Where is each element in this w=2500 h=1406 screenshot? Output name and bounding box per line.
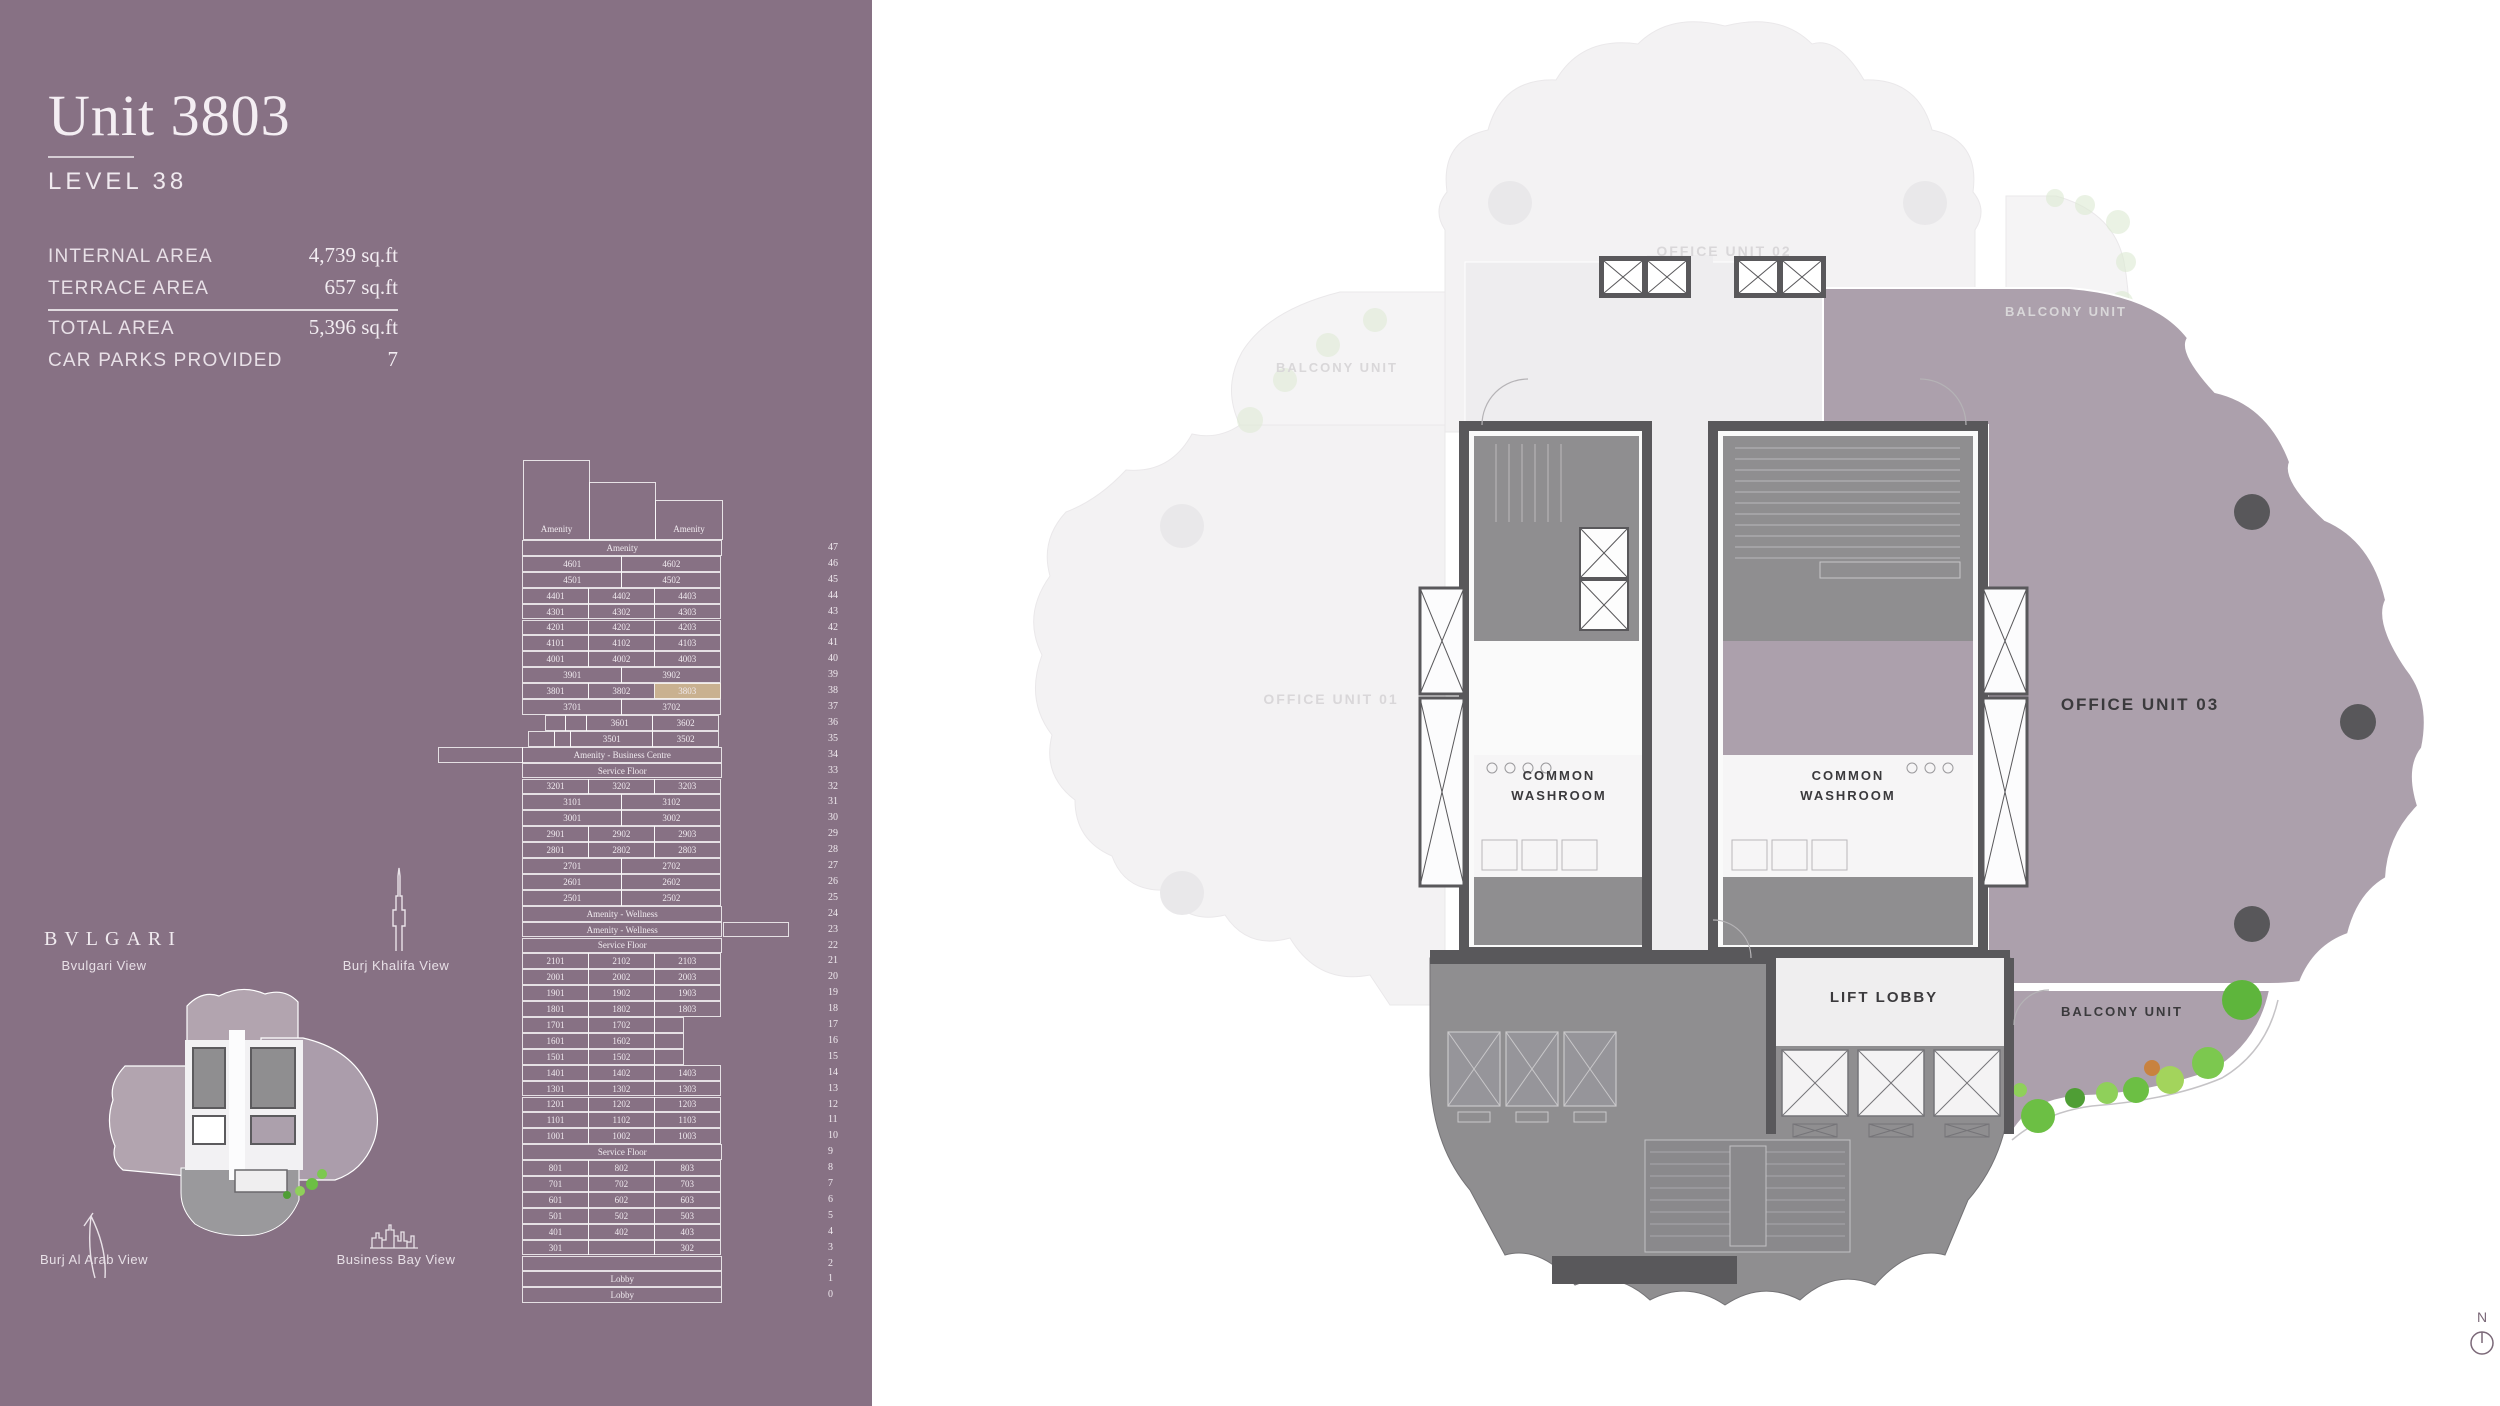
- stack-cell-4402: 4402: [588, 588, 655, 604]
- stack-cell-2003: 2003: [654, 969, 721, 985]
- stack-cell-4001: 4001: [522, 651, 589, 667]
- north-compass-icon: N: [2471, 1309, 2493, 1354]
- stack-level-number: 30: [828, 812, 838, 823]
- stack-level-41: 41014102410341: [523, 635, 721, 651]
- stack-level-23: Amenity - Wellness23: [523, 922, 722, 938]
- stack-level-31: 3101310231: [523, 794, 721, 810]
- stack-cell-1702: 1702: [588, 1017, 655, 1033]
- stack-level-number: 29: [828, 828, 838, 839]
- stack-cell-2803: 2803: [654, 842, 721, 858]
- stack-level-36: 3601360236: [523, 715, 719, 731]
- stack-level-37: 3701370237: [523, 699, 721, 715]
- tree: [2123, 1077, 2149, 1103]
- stack-topbox-right: Amenity: [655, 500, 723, 540]
- stack-level-number: 3: [828, 1242, 833, 1253]
- stack-cell-302: 302: [654, 1240, 721, 1256]
- stack-cell-3601: 3601: [586, 715, 653, 731]
- stack-cell-2701: 2701: [522, 858, 622, 874]
- stack-cell-1801: 1801: [522, 1001, 589, 1017]
- stack-cell-2102: 2102: [588, 953, 655, 969]
- building-stacking-plan: Amenity Amenity Amenity47460146024645014…: [523, 460, 723, 1305]
- stack-level-14: 14011402140314: [523, 1065, 721, 1081]
- stack-level-number: 14: [828, 1067, 838, 1078]
- service-stair: [1645, 1140, 1850, 1252]
- business-bay-view-label: Business Bay View: [326, 1252, 466, 1267]
- stack-cell-3203: 3203: [654, 779, 721, 795]
- main-floor-plan: OFFICE UNIT 02 BALCONY UNIT BALCONY UNIT…: [870, 0, 2500, 1406]
- stack-level-13: 13011302130313: [523, 1081, 721, 1097]
- stack-cell-1303: 1303: [654, 1081, 721, 1097]
- stack-level-30: 3001300230: [523, 810, 721, 826]
- stack-cell-empty: [588, 1240, 655, 1256]
- stack-cell-301: 301: [522, 1240, 589, 1256]
- tree: [2192, 1047, 2224, 1079]
- office-unit-03-label: OFFICE UNIT 03: [2061, 695, 2219, 714]
- stack-topbox-middle: [589, 482, 656, 540]
- title-underline: [48, 156, 134, 158]
- stack-cell-601: 601: [522, 1192, 589, 1208]
- stack-cell-503: 503: [654, 1208, 721, 1224]
- stack-level-1: Lobby1: [523, 1271, 722, 1287]
- bvlgari-view-label: Bvulgari View: [34, 958, 174, 973]
- washroom-2-label-bottom: WASHROOM: [1800, 788, 1895, 803]
- stack-cell-empty: [683, 1017, 720, 1033]
- stack-level-32: 32013202320332: [523, 779, 721, 795]
- stack-cell-1102: 1102: [588, 1112, 655, 1128]
- stack-cell-3602: 3602: [652, 715, 719, 731]
- stack-level-number: 7: [828, 1178, 833, 1189]
- stack-level-number: 46: [828, 558, 838, 569]
- stack-cell-3902: 3902: [621, 667, 721, 683]
- stack-level-number: 19: [828, 987, 838, 998]
- stack-cell-empty: [654, 1033, 684, 1049]
- stack-cell-2501: 2501: [522, 890, 622, 906]
- stack-cell-1901: 1901: [522, 985, 589, 1001]
- stack-cell-1202: 1202: [588, 1097, 655, 1113]
- stack-cell-3801: 3801: [522, 683, 589, 699]
- stack-cell-2902: 2902: [588, 826, 655, 842]
- stack-level-27: 2701270227: [523, 858, 721, 874]
- stack-cell-empty: [522, 1256, 722, 1272]
- stack-cell-4502: 4502: [621, 572, 721, 588]
- stack-level-33: Service Floor33: [523, 763, 722, 779]
- stack-level-10: 10011002100310: [523, 1128, 721, 1144]
- burj-khalifa-view-label: Burj Khalifa View: [326, 958, 466, 973]
- stack-level-number: 1: [828, 1273, 833, 1284]
- washroom-1-label-bottom: WASHROOM: [1511, 788, 1606, 803]
- stack-level-2: 2: [523, 1256, 722, 1272]
- lift-lobby-label: LIFT LOBBY: [1830, 989, 1938, 1006]
- stack-cell-501: 501: [522, 1208, 589, 1224]
- stack-cell-Amenity: Amenity: [522, 540, 722, 556]
- stat-car-parks: CAR PARKS PROVIDED 7: [48, 347, 398, 379]
- stack-cell-2001: 2001: [522, 969, 589, 985]
- stack-level-34: Amenity - Business Centre34: [523, 747, 722, 763]
- stack-level-26: 2601260226: [523, 874, 721, 890]
- stack-cell-4301: 4301: [522, 604, 589, 620]
- page-title: Unit 3803: [48, 82, 291, 149]
- stack-cell-1501: 1501: [522, 1049, 589, 1065]
- stack-level-18: 18011802180318: [523, 1001, 721, 1017]
- stat-internal-area: INTERNAL AREA 4,739 sq.ft: [48, 243, 398, 275]
- stack-cell-803: 803: [654, 1160, 721, 1176]
- stack-cell-401: 401: [522, 1224, 589, 1240]
- stack-cell-3102: 3102: [621, 794, 721, 810]
- stack-cell-empty: [654, 1017, 684, 1033]
- stack-cell-Amenity - Wellness: Amenity - Wellness: [522, 922, 722, 938]
- stack-cell-1103: 1103: [654, 1112, 721, 1128]
- stack-level-number: 33: [828, 765, 838, 776]
- stack-cell-1602: 1602: [588, 1033, 655, 1049]
- bvlgari-logo: BVLGARI: [44, 928, 164, 951]
- stack-cell-703: 703: [654, 1176, 721, 1192]
- stack-cell-1101: 1101: [522, 1112, 589, 1128]
- balcony-unit-label: BALCONY UNIT: [2061, 1004, 2183, 1019]
- stack-cell-702: 702: [588, 1176, 655, 1192]
- stack-cell-3202: 3202: [588, 779, 655, 795]
- stack-level-number: 20: [828, 971, 838, 982]
- stack-cell-3501: 3501: [570, 731, 653, 747]
- stack-cell-3702: 3702: [621, 699, 721, 715]
- stack-level-number: 32: [828, 781, 838, 792]
- unit03-inner-room: [1723, 641, 1973, 755]
- stack-cell-2702: 2702: [621, 858, 721, 874]
- compass-n-label: N: [2477, 1309, 2487, 1325]
- stack-level-number: 42: [828, 622, 838, 633]
- office-unit-02-label: OFFICE UNIT 02: [1656, 243, 1791, 259]
- stack-cell-4203: 4203: [654, 620, 721, 636]
- stack-level-25: 2501250225: [523, 890, 721, 906]
- stack-cell-603: 603: [654, 1192, 721, 1208]
- stack-cell-602: 602: [588, 1192, 655, 1208]
- stack-cell-1902: 1902: [588, 985, 655, 1001]
- stack-cell-4003: 4003: [654, 651, 721, 667]
- burj-khalifa-icon: [384, 866, 414, 952]
- stack-level-number: 37: [828, 701, 838, 712]
- lift-shafts: [1782, 1050, 2000, 1137]
- stack-level-17: 1701170217: [523, 1017, 720, 1033]
- stack-cell-4303: 4303: [654, 604, 721, 620]
- stack-level-6: 6016026036: [523, 1192, 721, 1208]
- stack-cell-1802: 1802: [588, 1001, 655, 1017]
- stack-level-number: 16: [828, 1035, 838, 1046]
- stack-level-number: 22: [828, 940, 838, 951]
- business-bay-icon: [370, 1222, 420, 1250]
- stack-level-number: 47: [828, 542, 838, 553]
- stack-level-number: 23: [828, 924, 838, 935]
- stack-level-number: 28: [828, 844, 838, 855]
- stack-level-number: 26: [828, 876, 838, 887]
- stack-cell-3502: 3502: [652, 731, 719, 747]
- stack-cell-empty: [545, 715, 566, 731]
- stack-cell-1403: 1403: [654, 1065, 721, 1081]
- stack-level-number: 24: [828, 908, 838, 919]
- stack-cell-2801: 2801: [522, 842, 589, 858]
- stack-level-number: 12: [828, 1099, 838, 1110]
- stack-level-22: Service Floor22: [523, 938, 722, 954]
- stack-level-9: Service Floor9: [523, 1144, 722, 1160]
- stack-cell-1002: 1002: [588, 1128, 655, 1144]
- stat-terrace-area: TERRACE AREA 657 sq.ft: [48, 275, 398, 307]
- stack-cell-empty: [528, 731, 555, 747]
- stack-level-number: 10: [828, 1130, 838, 1141]
- stack-level-number: 44: [828, 590, 838, 601]
- stack-level-number: 2: [828, 1258, 833, 1269]
- stack-cell-Amenity - Business Centre: Amenity - Business Centre: [522, 747, 722, 763]
- stack-level-12: 12011202120312: [523, 1097, 721, 1113]
- level-subtitle: LEVEL 38: [48, 168, 187, 196]
- stack-level-number: 15: [828, 1051, 838, 1062]
- stack-cell-Amenity - Wellness: Amenity - Wellness: [522, 906, 722, 922]
- stack-cell-1401: 1401: [522, 1065, 589, 1081]
- stack-level-number: 34: [828, 749, 838, 760]
- stack-cell-2901: 2901: [522, 826, 589, 842]
- stack-level-number: 38: [828, 685, 838, 696]
- stack-cell-502: 502: [588, 1208, 655, 1224]
- stack-cell-701: 701: [522, 1176, 589, 1192]
- stack-cell-3001: 3001: [522, 810, 622, 826]
- stack-cell-1001: 1001: [522, 1128, 589, 1144]
- stack-cell-2103: 2103: [654, 953, 721, 969]
- brochure-page: Unit 3803 LEVEL 38 INTERNAL AREA 4,739 s…: [0, 0, 2500, 1406]
- stack-level-40: 40014002400340: [523, 651, 721, 667]
- stack-cell-1302: 1302: [588, 1081, 655, 1097]
- stack-level-number: 4: [828, 1226, 833, 1237]
- central-corridor: [1647, 255, 1713, 958]
- stack-level-number: 18: [828, 1003, 838, 1014]
- stack-cell-3002: 3002: [621, 810, 721, 826]
- stack-cell-3201: 3201: [522, 779, 589, 795]
- stack-cell-3901: 3901: [522, 667, 622, 683]
- stack-cell-1402: 1402: [588, 1065, 655, 1081]
- stack-cell-4002: 4002: [588, 651, 655, 667]
- right-core: [1713, 426, 2027, 952]
- stack-level-16: 1601160216: [523, 1033, 720, 1049]
- stack-cell-4102: 4102: [588, 635, 655, 651]
- stack-cell-3701: 3701: [522, 699, 622, 715]
- stack-cell-Service Floor: Service Floor: [522, 1144, 722, 1160]
- stack-level-number: 45: [828, 574, 838, 585]
- stack-cell-Lobby: Lobby: [522, 1271, 722, 1287]
- burj-al-arab-icon: [75, 1210, 115, 1282]
- stack-level-number: 9: [828, 1146, 833, 1157]
- stack-cell-1201: 1201: [522, 1097, 589, 1113]
- stack-cell-1701: 1701: [522, 1017, 589, 1033]
- stack-cell-4201: 4201: [522, 620, 589, 636]
- left-core: [1420, 426, 1647, 952]
- stack-level-number: 8: [828, 1162, 833, 1173]
- stack-cell-4501: 4501: [522, 572, 622, 588]
- stack-level-number: 41: [828, 637, 838, 648]
- stack-cell-403: 403: [654, 1224, 721, 1240]
- stack-cell-1203: 1203: [654, 1097, 721, 1113]
- column: [2234, 906, 2270, 942]
- stack-cell-2502: 2502: [621, 890, 721, 906]
- stack-cell-1003: 1003: [654, 1128, 721, 1144]
- stack-cell-2903: 2903: [654, 826, 721, 842]
- area-stats: INTERNAL AREA 4,739 sq.ft TERRACE AREA 6…: [48, 243, 398, 379]
- stack-level-4: 4014024034: [523, 1224, 721, 1240]
- stack-cell-empty: [654, 1049, 684, 1065]
- balcony-unit-top-right-label: BALCONY UNIT: [2005, 304, 2127, 319]
- column: [2234, 494, 2270, 530]
- stack-cell-2602: 2602: [621, 874, 721, 890]
- stack-level-11: 11011102110311: [523, 1112, 721, 1128]
- stack-level-39: 3901390239: [523, 667, 721, 683]
- stack-level-19: 19011902190319: [523, 985, 721, 1001]
- stack-level-number: 17: [828, 1019, 838, 1030]
- stack-cell-2002: 2002: [588, 969, 655, 985]
- stack-level-24: Amenity - Wellness24: [523, 906, 722, 922]
- stack-level-number: 5: [828, 1210, 833, 1221]
- stack-cell-3802: 3802: [588, 683, 655, 699]
- left-info-panel: Unit 3803 LEVEL 38 INTERNAL AREA 4,739 s…: [0, 0, 872, 1406]
- stack-level-number: 6: [828, 1194, 833, 1205]
- stat-total-area: TOTAL AREA 5,396 sq.ft: [48, 315, 398, 347]
- stack-cell-3803: 3803: [654, 683, 721, 699]
- stack-level-21: 21012102210321: [523, 953, 721, 969]
- stack-cell-4602: 4602: [621, 556, 721, 572]
- stack-cell-4302: 4302: [588, 604, 655, 620]
- stack-level-number: 25: [828, 892, 838, 903]
- stack-level-number: 39: [828, 669, 838, 680]
- stack-level-38: 38013802380338: [523, 683, 721, 699]
- stack-cell-1301: 1301: [522, 1081, 589, 1097]
- washroom-1-label-top: COMMON: [1523, 768, 1596, 783]
- stack-level-43: 43014302430343: [523, 604, 721, 620]
- shrub: [2013, 1083, 2027, 1097]
- stack-level-number: 31: [828, 796, 838, 807]
- stack-cell-1803: 1803: [654, 1001, 721, 1017]
- stack-cell-2601: 2601: [522, 874, 622, 890]
- stack-level-number: 27: [828, 860, 838, 871]
- stack-cell-1502: 1502: [588, 1049, 655, 1065]
- stack-cell-empty: [565, 715, 587, 731]
- office-unit-01-area: [1034, 425, 1445, 1005]
- tree: [2222, 980, 2262, 1020]
- stack-cell-2802: 2802: [588, 842, 655, 858]
- stack-level-42: 42014202420342: [523, 620, 721, 636]
- stack-level-7: 7017027037: [523, 1176, 721, 1192]
- stack-cell-4403: 4403: [654, 588, 721, 604]
- stack-level-number: 11: [828, 1114, 838, 1125]
- mini-key-plan: [107, 988, 383, 1237]
- stack-cell-4601: 4601: [522, 556, 622, 572]
- stack-level-number: 21: [828, 955, 838, 966]
- stack-cell-Service Floor: Service Floor: [522, 938, 722, 954]
- stack-cell-4401: 4401: [522, 588, 589, 604]
- stack-level-20: 20012002200320: [523, 969, 721, 985]
- stack-level-44: 44014402440344: [523, 588, 721, 604]
- office-unit-01-label: OFFICE UNIT 01: [1263, 691, 1398, 707]
- stack-level-5: 5015025035: [523, 1208, 721, 1224]
- stack-level-3: 3013023: [523, 1240, 721, 1256]
- stack-topbox-left: Amenity: [523, 460, 590, 540]
- stack-level-number: 13: [828, 1083, 838, 1094]
- stack-cell-empty: [683, 1033, 720, 1049]
- stack-cell-1903: 1903: [654, 985, 721, 1001]
- stack-level-8: 8018028038: [523, 1160, 721, 1176]
- stack-level-29: 29012902290329: [523, 826, 721, 842]
- stack-cell-4101: 4101: [522, 635, 589, 651]
- tree: [2096, 1082, 2118, 1104]
- stack-level-number: 40: [828, 653, 838, 664]
- stack-cell-1601: 1601: [522, 1033, 589, 1049]
- stack-level-35: 3501350235: [523, 731, 719, 747]
- shrub: [2144, 1060, 2160, 1076]
- stats-divider: [48, 309, 398, 311]
- tree: [2065, 1088, 2085, 1108]
- stack-level-0: Lobby0: [523, 1287, 722, 1303]
- stack-cell-4202: 4202: [588, 620, 655, 636]
- burj-al-arab-view-label: Burj Al Arab View: [24, 1252, 164, 1267]
- stack-cell-4103: 4103: [654, 635, 721, 651]
- column: [2340, 704, 2376, 740]
- stack-cell-3101: 3101: [522, 794, 622, 810]
- stack-cell-empty: [683, 1049, 720, 1065]
- tree: [2021, 1099, 2055, 1133]
- balcony-unit-left-label: BALCONY UNIT: [1276, 360, 1398, 375]
- stack-cell-empty: [554, 731, 571, 747]
- stack-cell-Lobby: Lobby: [522, 1287, 722, 1303]
- stack-level-number: 0: [828, 1289, 833, 1300]
- stack-cell-802: 802: [588, 1160, 655, 1176]
- stack-level-46: 4601460246: [523, 556, 721, 572]
- stack-cell-Service Floor: Service Floor: [522, 763, 722, 779]
- stack-level-47: Amenity47: [523, 540, 722, 556]
- stack-level-45: 4501450245: [523, 572, 721, 588]
- stack-cell-2101: 2101: [522, 953, 589, 969]
- stack-level-15: 1501150215: [523, 1049, 720, 1065]
- stack-level-number: 36: [828, 717, 838, 728]
- washroom-2-label-top: COMMON: [1812, 768, 1885, 783]
- stack-cell-402: 402: [588, 1224, 655, 1240]
- stack-cell-801: 801: [522, 1160, 589, 1176]
- stack-cell-empty: [522, 715, 545, 731]
- tree: [2156, 1066, 2184, 1094]
- stack-level-28: 28012802280328: [523, 842, 721, 858]
- stack-level-number: 35: [828, 733, 838, 744]
- stack-level-number: 43: [828, 606, 838, 617]
